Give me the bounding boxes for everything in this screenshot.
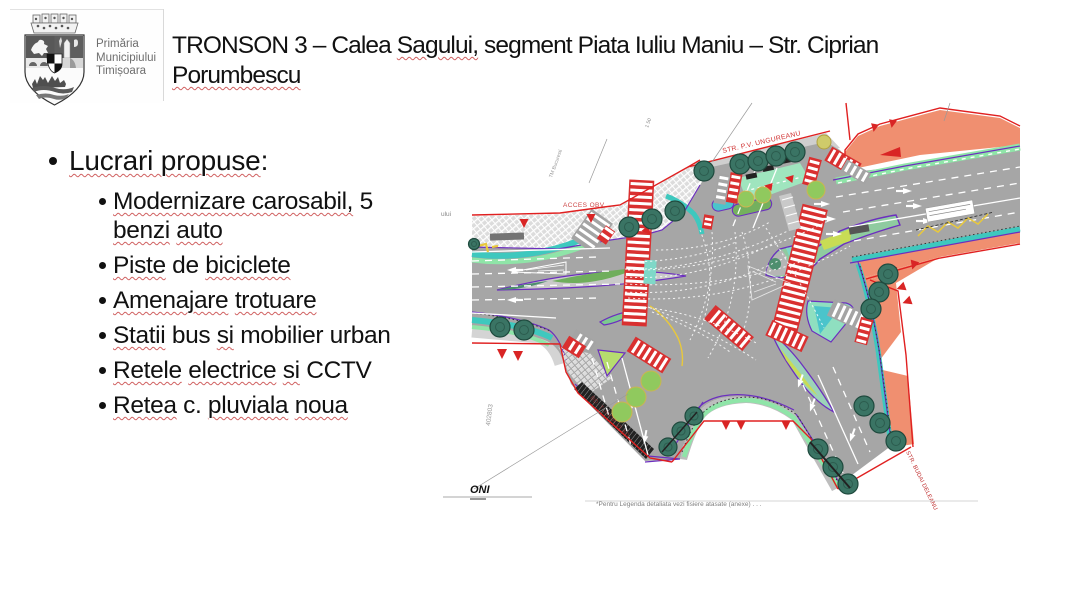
svg-text:*Pentru Legenda detaliata vezi: *Pentru Legenda detaliata vezi fisiere a… [596,501,762,508]
svg-text:ului: ului [441,211,451,218]
svg-text:1 50: 1 50 [644,117,653,128]
svg-text:STR. BUDAI DELEANU: STR. BUDAI DELEANU [904,450,938,511]
svg-text:ONI: ONI [470,484,491,496]
svg-text:TM Bucuresti: TM Bucuresti [548,149,564,179]
svg-text:402803: 402803 [485,403,495,426]
svg-text:ACCES OBV: ACCES OBV [563,202,605,209]
